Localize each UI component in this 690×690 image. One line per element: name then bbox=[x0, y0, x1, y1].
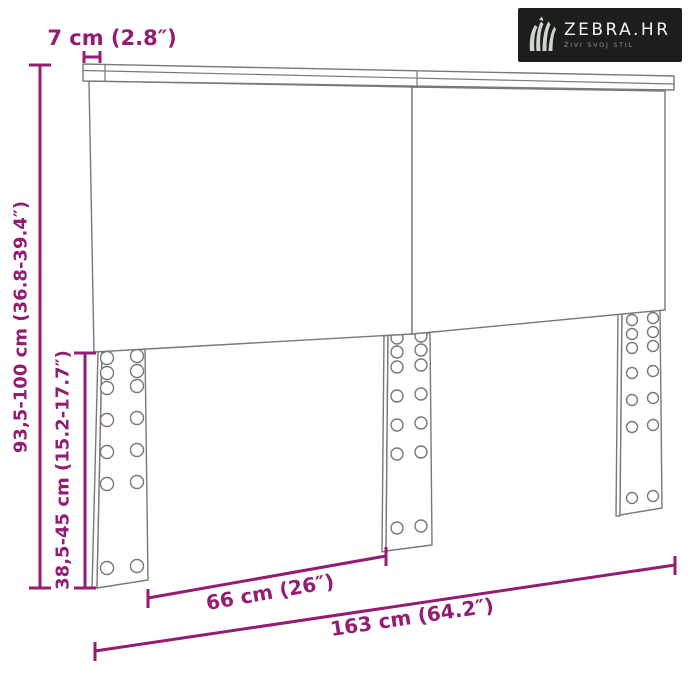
brand-tagline: ŽIVI SVOJ STIL bbox=[564, 42, 671, 49]
dim-leg-height: 38,5-45 cm (15.2-17.7″) bbox=[53, 350, 97, 590]
headboard-drawing bbox=[83, 64, 674, 589]
dim-board-depth: 7 cm (2.8″) bbox=[47, 26, 176, 63]
dim-total-width: 163 cm (64.2″) bbox=[95, 556, 675, 661]
dim-label-board-depth: 7 cm (2.8″) bbox=[47, 26, 176, 50]
right-leg-front bbox=[620, 309, 662, 515]
product-dimension-image: 7 cm (2.8″) 93,5-100 cm (36.8-39.4″) 38,… bbox=[0, 0, 690, 690]
dim-inner-width: 66 cm (26″) bbox=[148, 547, 386, 615]
brand-logo: ZEBRA.HR ŽIVI SVOJ STIL bbox=[518, 8, 682, 62]
right-leg bbox=[616, 309, 662, 516]
right-panel bbox=[412, 87, 665, 334]
middle-leg bbox=[382, 330, 432, 552]
dim-label-total-width: 163 cm (64.2″) bbox=[329, 593, 496, 641]
left-panel bbox=[89, 81, 412, 352]
brand-name: ZEBRA.HR bbox=[564, 22, 671, 39]
zebra-icon bbox=[527, 16, 557, 54]
dim-label-leg-height: 38,5-45 cm (15.2-17.7″) bbox=[53, 350, 74, 590]
dim-label-total-height: 93,5-100 cm (36.8-39.4″) bbox=[11, 201, 32, 453]
headboard-dimension-diagram: 7 cm (2.8″) 93,5-100 cm (36.8-39.4″) 38,… bbox=[0, 0, 690, 690]
left-leg bbox=[92, 349, 148, 589]
dim-total-height: 93,5-100 cm (36.8-39.4″) bbox=[11, 65, 52, 588]
brand-logo-text: ZEBRA.HR ŽIVI SVOJ STIL bbox=[564, 22, 671, 49]
